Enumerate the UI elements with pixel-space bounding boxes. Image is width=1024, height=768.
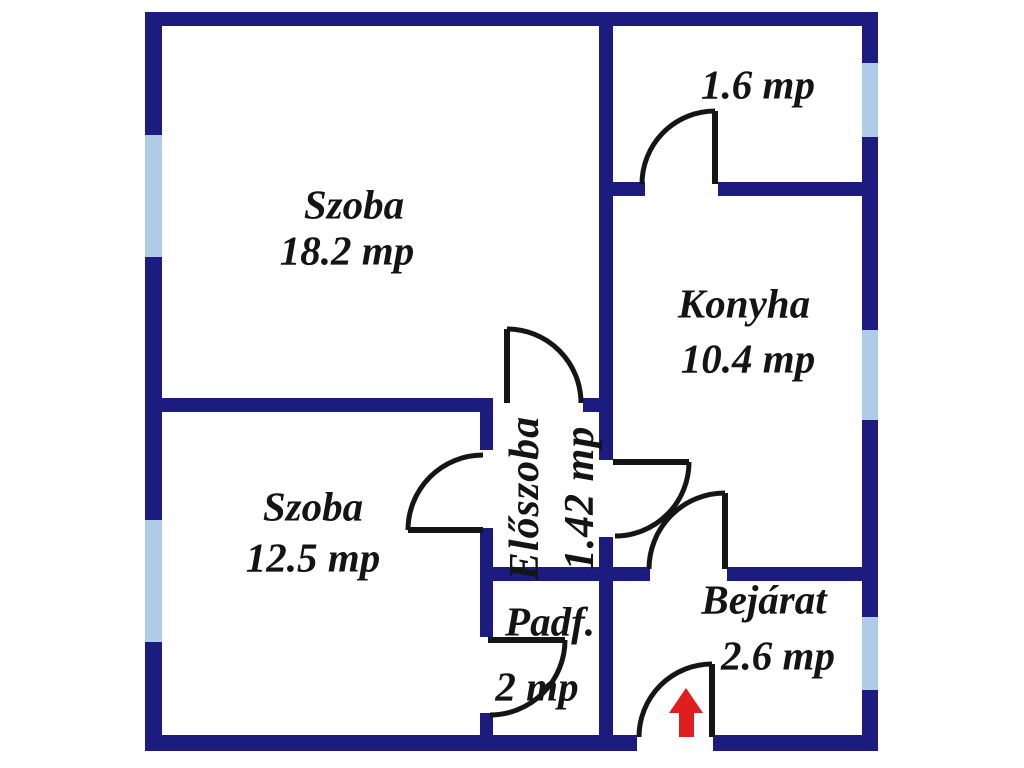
wall-kamra-bottom-left [613, 182, 645, 196]
room-label-eloszoba: Előszoba 1.42 mp [498, 416, 608, 580]
room-label-padf-area: 2 mp [495, 667, 578, 708]
room-label-padf-name: Padf. [505, 602, 595, 643]
floorplan: Szoba 18.2 mp 1.6 mp Konyha 10.4 mp Szob… [0, 0, 1024, 768]
wall-szoba-large-bottom-left [145, 398, 493, 412]
wall-outer-top [145, 12, 878, 26]
wall-outer-bottom-right [713, 735, 878, 751]
window-right-low [862, 617, 878, 690]
room-label-szoba-small-name: Szoba [263, 487, 363, 528]
door-arc-szoba-large [507, 329, 581, 403]
wall-padf-left-lower [480, 713, 493, 751]
wall-center-vertical-upper [599, 12, 613, 460]
room-label-eloszoba-area: 1.42 mp [553, 416, 608, 580]
room-label-szoba-small-area: 12.5 mp [246, 538, 380, 579]
room-label-bejarat-area: 2.6 mp [721, 636, 835, 677]
wall-eloszoba-left-upper [480, 398, 493, 450]
window-left-lower [145, 520, 162, 642]
wall-kamra-bottom-right [718, 182, 862, 196]
wall-eloszoba-left-lower [480, 528, 493, 637]
wall-konyha-bejarat-left [613, 567, 650, 581]
door-arc-entrance [639, 664, 712, 737]
window-right-mid [862, 330, 878, 420]
room-label-eloszoba-name: Előszoba [498, 416, 553, 580]
entrance-arrow-icon [669, 688, 703, 737]
door-arc-bejarat-konyha [649, 493, 725, 569]
room-label-szoba-large-name: Szoba [304, 185, 404, 226]
door-arc-szoba-small [408, 455, 483, 530]
room-label-bejarat-name: Bejárat [701, 580, 826, 621]
room-label-konyha-area: 10.4 mp [681, 339, 815, 380]
window-left-upper [145, 135, 162, 257]
room-label-kamra-area: 1.6 mp [701, 65, 815, 106]
door-arc-kamra [642, 111, 715, 184]
wall-outer-bottom-left [145, 735, 637, 751]
door-arc-eloszoba-konyha [615, 462, 689, 536]
window-right-top [862, 63, 878, 137]
room-label-szoba-large-area: 18.2 mp [280, 231, 414, 272]
room-label-konyha-name: Konyha [678, 284, 810, 325]
